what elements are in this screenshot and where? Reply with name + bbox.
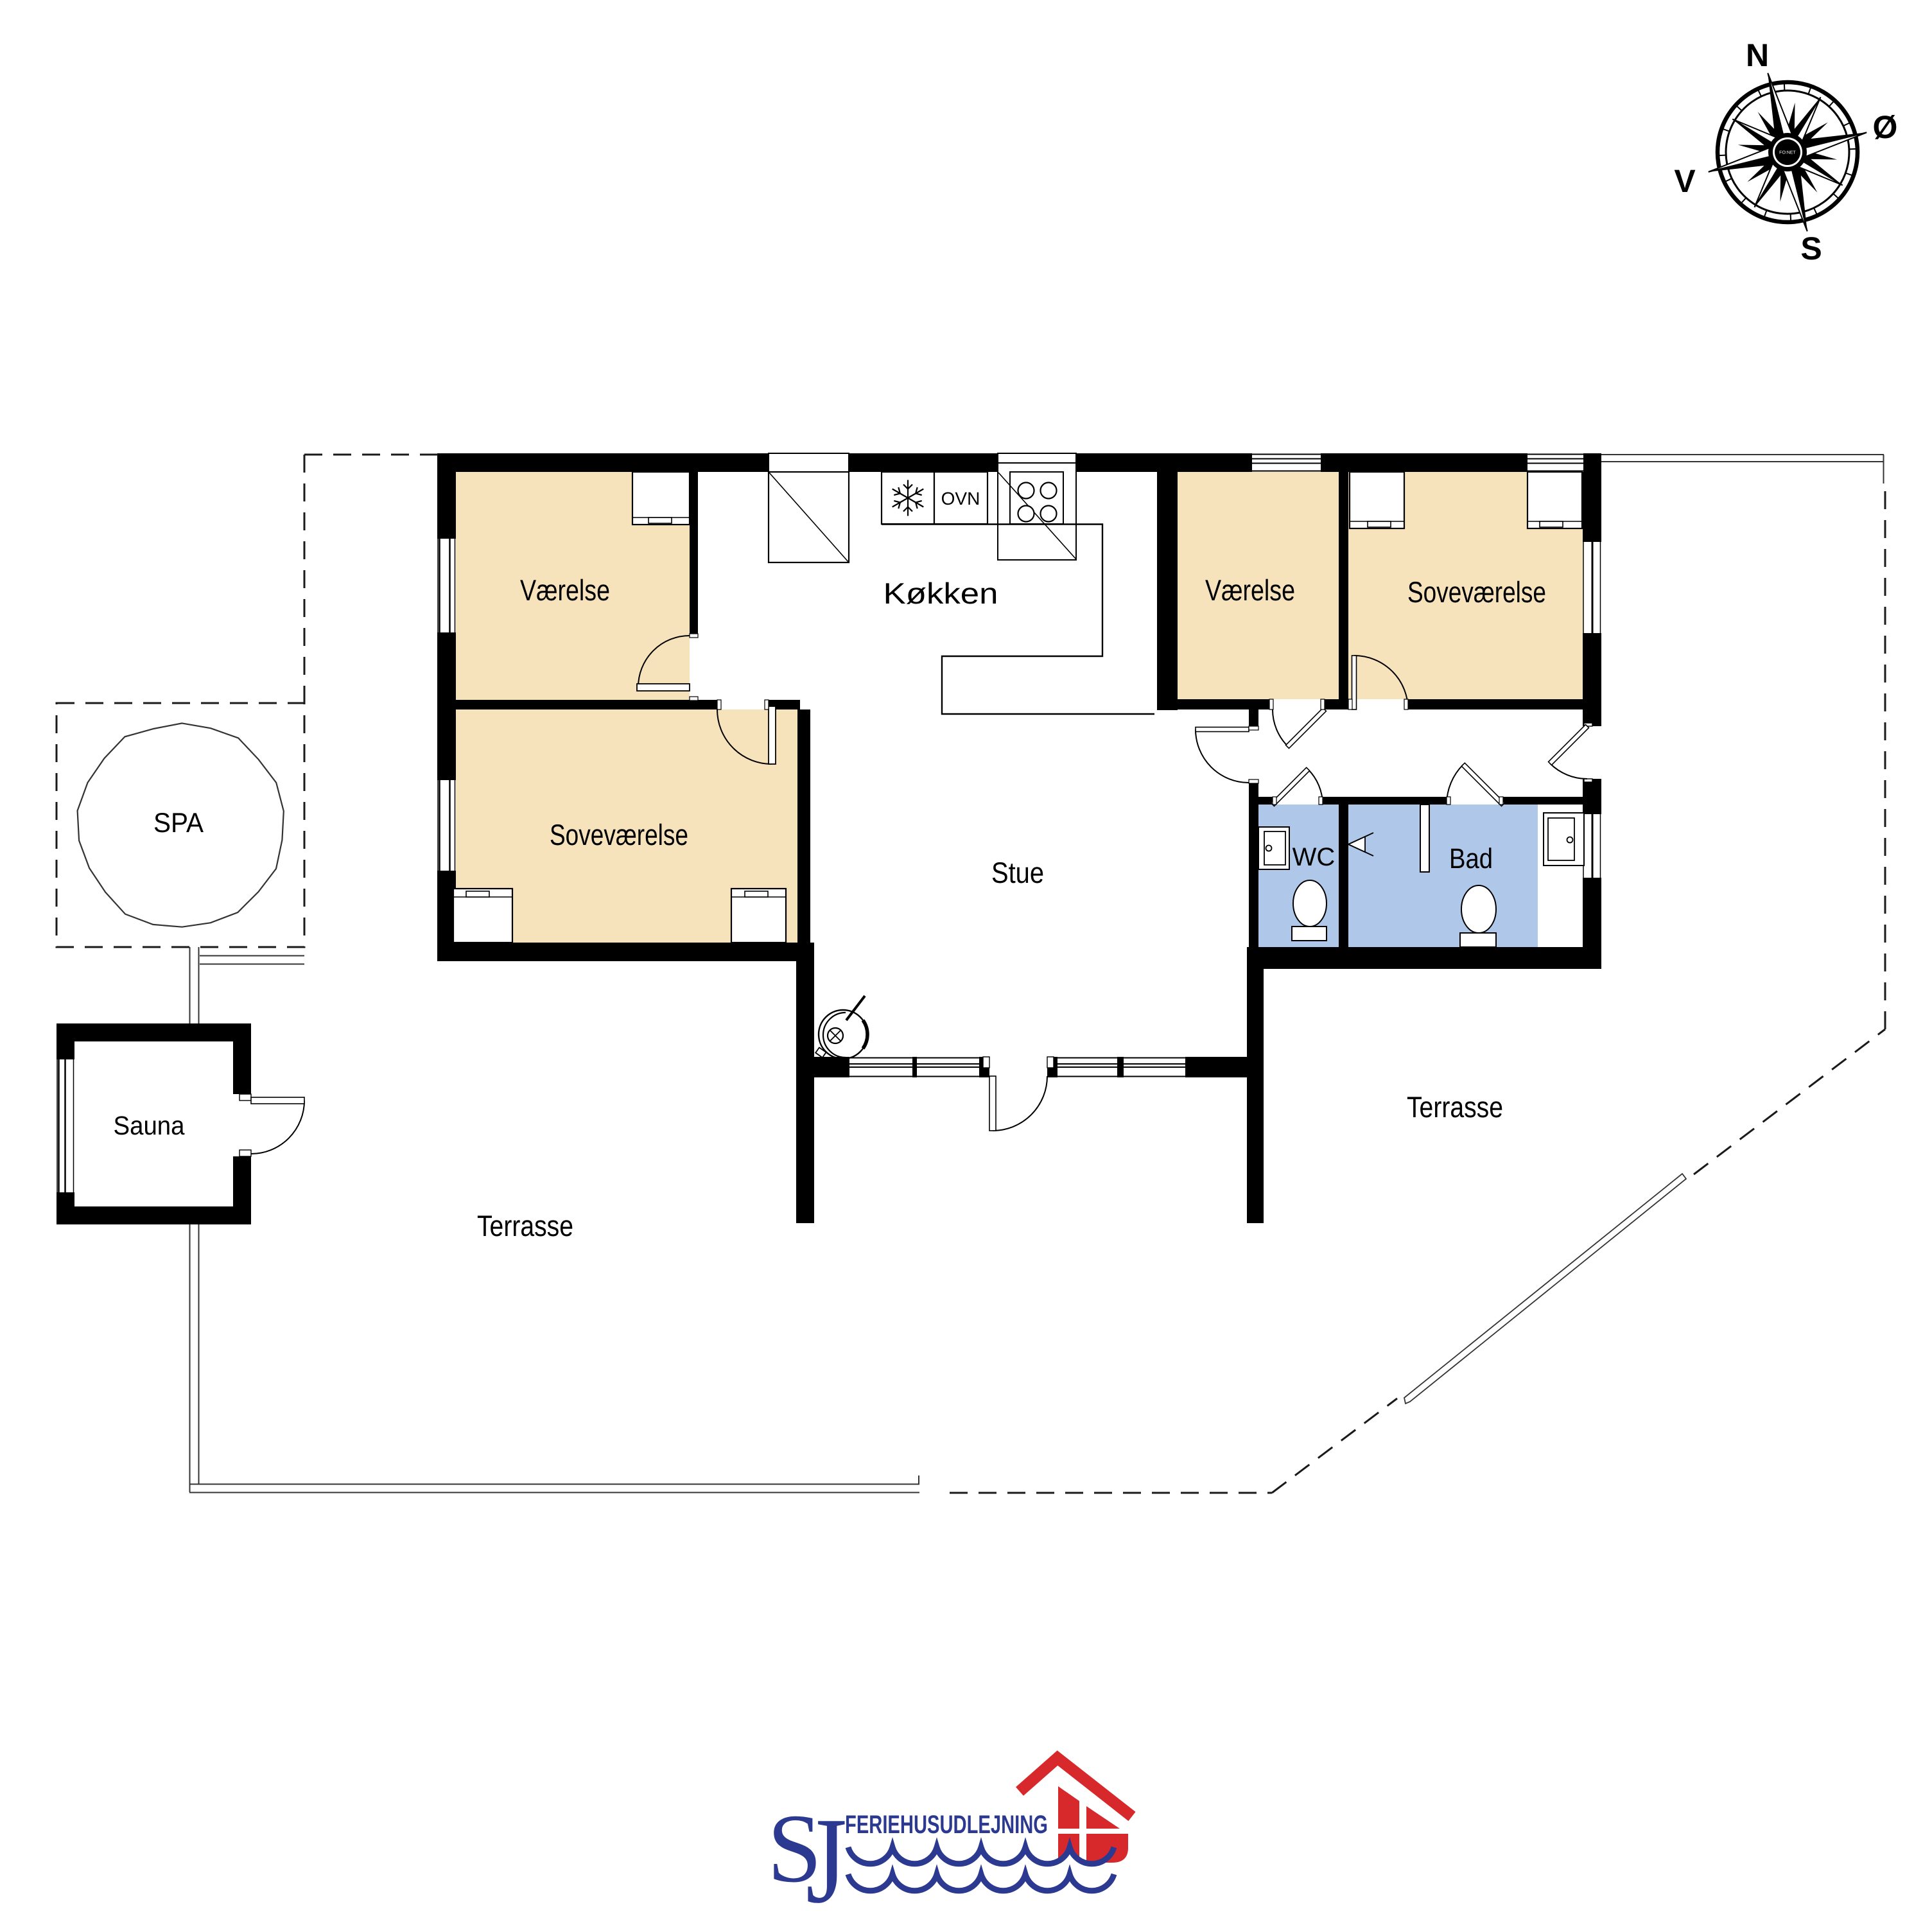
svg-text:SPA: SPA	[153, 808, 204, 839]
svg-text:Ø: Ø	[1873, 109, 1898, 145]
svg-text:J: J	[806, 1792, 847, 1929]
svg-text:WC: WC	[1292, 843, 1336, 871]
svg-text:Soveværelse: Soveværelse	[550, 818, 688, 851]
svg-text:OVN: OVN	[941, 489, 980, 509]
svg-text:Terrasse: Terrasse	[477, 1209, 573, 1242]
svg-text:Bad: Bad	[1449, 843, 1493, 875]
svg-text:N: N	[1746, 37, 1769, 73]
svg-text:V: V	[1674, 163, 1696, 199]
svg-text:Sauna: Sauna	[114, 1111, 185, 1140]
svg-text:FERIEHUSUDLEJNING: FERIEHUSUDLEJNING	[845, 1811, 1048, 1839]
svg-text:FO:NET: FO:NET	[1779, 151, 1796, 155]
svg-text:Køkken: Køkken	[883, 577, 998, 610]
svg-text:Soveværelse: Soveværelse	[1407, 575, 1546, 609]
svg-text:Terrasse: Terrasse	[1407, 1090, 1503, 1124]
svg-text:Værelse: Værelse	[1205, 573, 1295, 607]
svg-text:S: S	[1800, 231, 1822, 266]
svg-text:Stue: Stue	[991, 856, 1044, 889]
svg-text:Værelse: Værelse	[520, 573, 610, 607]
